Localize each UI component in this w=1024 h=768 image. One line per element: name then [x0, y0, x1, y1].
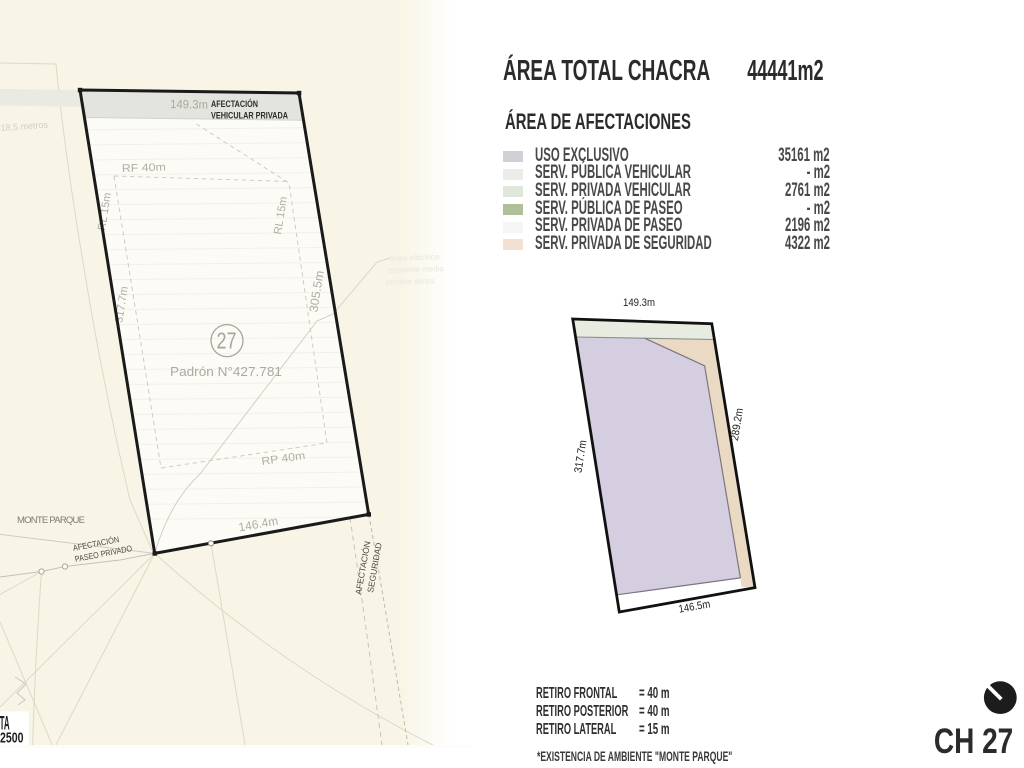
- svg-text:tensión aérea: tensión aérea: [386, 276, 435, 287]
- svg-text:2500: 2500: [0, 730, 24, 747]
- svg-text:149.3m: 149.3m: [623, 297, 655, 309]
- svg-text:317.7m: 317.7m: [573, 439, 590, 473]
- svg-text:149.3m: 149.3m: [170, 97, 208, 112]
- svg-text:línea eléctrica: línea eléctrica: [390, 252, 440, 263]
- svg-text:VEHICULAR PRIVADA: VEHICULAR PRIVADA: [211, 111, 288, 122]
- svg-text:289.2m: 289.2m: [729, 407, 746, 441]
- svg-text:27: 27: [217, 328, 237, 354]
- svg-text:RF 40m: RF 40m: [122, 161, 166, 175]
- svg-text:AFECTACIÓN: AFECTACIÓN: [211, 98, 258, 110]
- svg-text:Padrón N°427.781: Padrón N°427.781: [170, 365, 282, 379]
- svg-text:MONTE PARQUE: MONTE PARQUE: [17, 515, 85, 526]
